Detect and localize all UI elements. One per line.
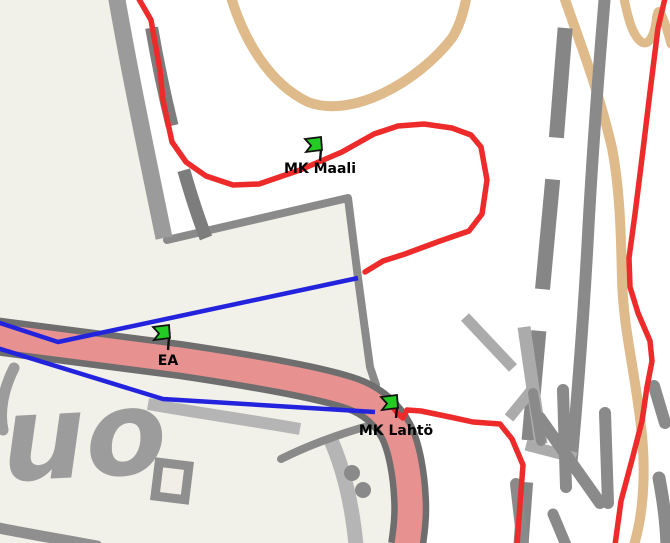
start-marker-label: MK Lahtö <box>359 423 434 439</box>
control-marker-label: EA <box>158 353 179 369</box>
map-canvas[interactable]: uo <box>0 0 670 543</box>
place-label-text: uo <box>0 363 170 509</box>
building-symbol <box>155 462 189 499</box>
finish-marker-label: MK Maali <box>284 161 356 177</box>
